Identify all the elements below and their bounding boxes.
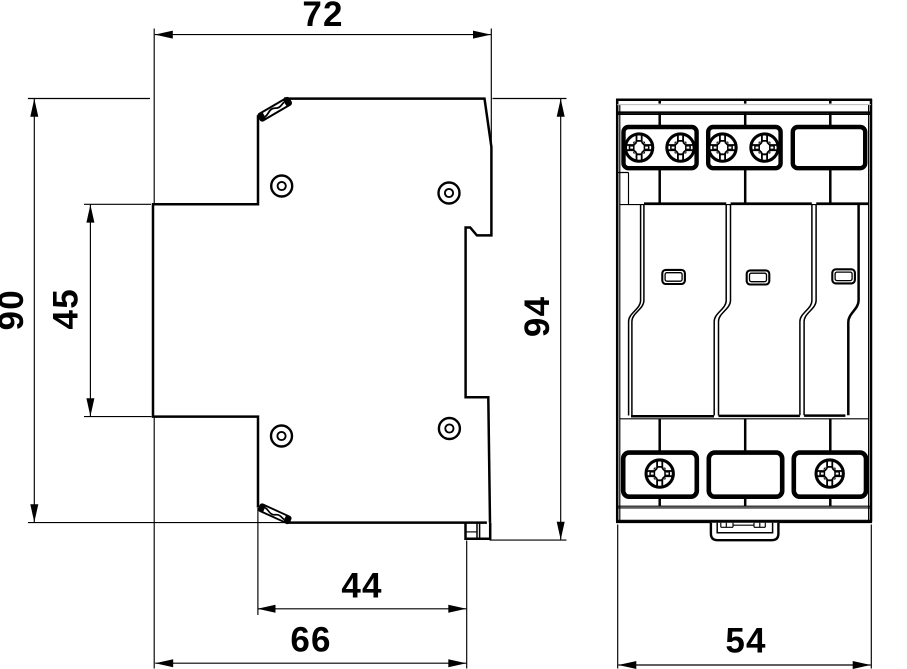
svg-text:54: 54 [725, 622, 766, 661]
svg-text:45: 45 [46, 288, 85, 329]
svg-text:90: 90 [0, 289, 31, 330]
svg-text:44: 44 [341, 567, 382, 606]
svg-text:94: 94 [518, 296, 557, 337]
svg-text:72: 72 [302, 0, 343, 34]
svg-text:66: 66 [290, 620, 331, 659]
